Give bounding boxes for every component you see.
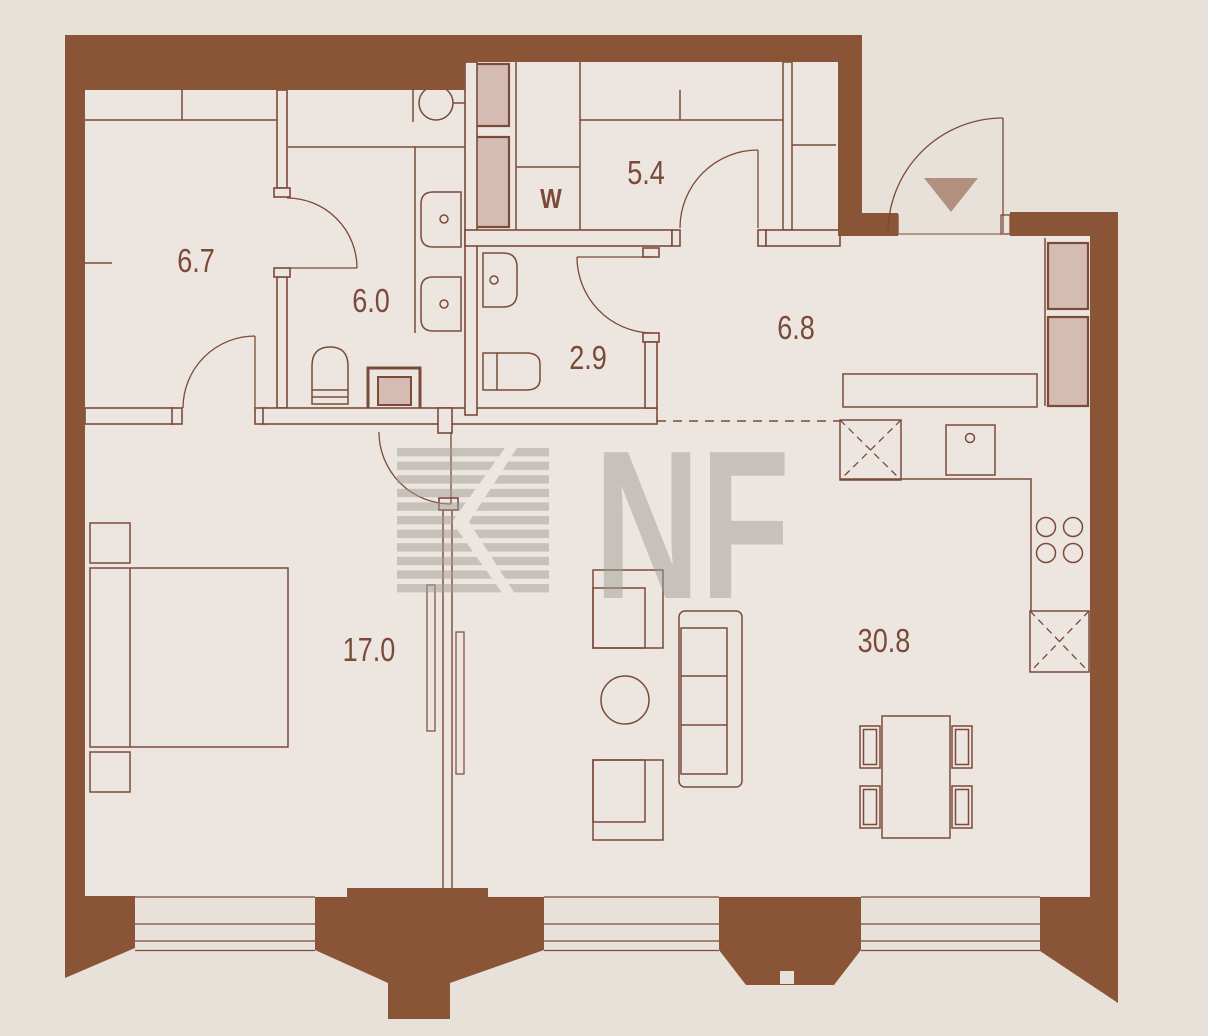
room-label-bedroom: 17.0 — [343, 631, 396, 669]
window — [544, 897, 719, 951]
room-label-hallway: 6.8 — [777, 309, 815, 347]
room-label-living: 30.8 — [858, 622, 911, 660]
entrance-arrow-icon — [924, 178, 978, 212]
window — [135, 897, 315, 951]
corner-pier — [1040, 897, 1118, 1003]
watermark-text: NF — [594, 406, 790, 643]
room-label-laundry: 5.4 — [627, 154, 665, 192]
room-label-wc: 2.9 — [569, 339, 607, 377]
floorplan-canvas: NF 6.7 6.0 5.4 W 2.9 6.8 17.0 30.8 — [0, 0, 1208, 1036]
windows — [135, 897, 1040, 951]
entrance-door — [888, 118, 1003, 234]
sliding-panel — [456, 632, 464, 774]
room-label-washer: W — [540, 183, 562, 215]
hall-shaft-nook — [1045, 238, 1088, 406]
pier-notch — [780, 971, 794, 984]
room-label-wardrobe: 6.7 — [177, 242, 215, 280]
window — [861, 897, 1040, 951]
room-label-bathroom: 6.0 — [352, 282, 390, 320]
window-pier — [315, 888, 544, 1019]
floorplan-drawing: NF — [0, 0, 1208, 1036]
sliding-panel — [427, 585, 435, 731]
